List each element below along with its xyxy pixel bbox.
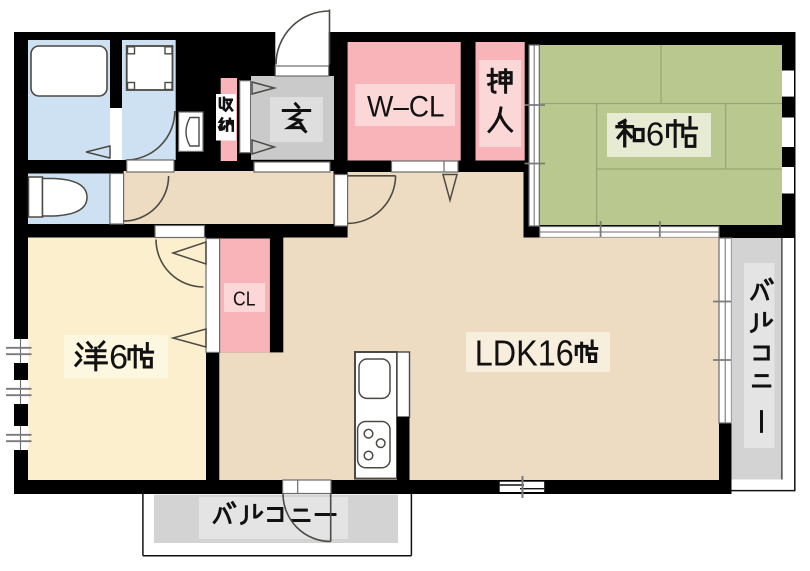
- svg-text:W–CL: W–CL: [367, 90, 445, 123]
- svg-text:LDK16: LDK16: [475, 332, 574, 373]
- svg-text:CL: CL: [233, 289, 256, 311]
- svg-text:6: 6: [109, 339, 128, 377]
- svg-text:6: 6: [646, 116, 664, 153]
